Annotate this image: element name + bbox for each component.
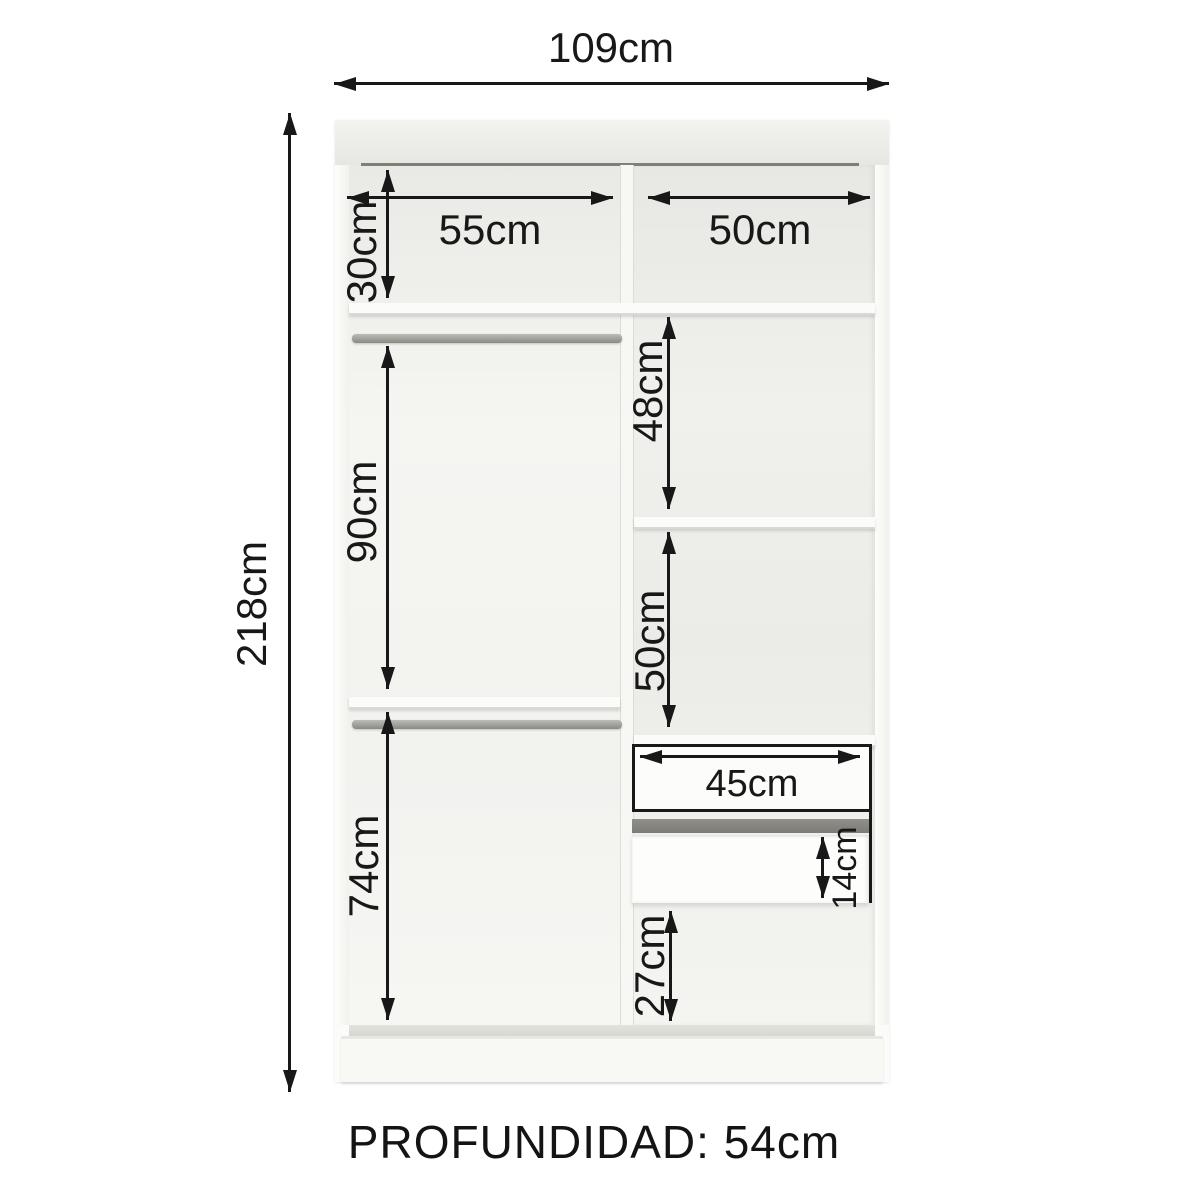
dim-label-shelf-upper-height: 48cm [627, 340, 669, 443]
dim-label-bottom-section-height: 27cm [629, 915, 671, 1018]
dim-label-drawer-width: 45cm [706, 765, 799, 803]
cabinet-top-panel [335, 120, 889, 165]
right-side-wall [875, 165, 889, 1025]
depth-label: PROFUNDIDAD: 54cm [348, 1115, 840, 1169]
cabinet-floor-strip [349, 1025, 875, 1036]
dim-arrow-top-section-height [386, 170, 389, 298]
dim-arrow-drawer-width [640, 755, 860, 758]
drawer-dimension-extension-line [869, 810, 872, 903]
right-column-upper-shelf [634, 517, 875, 529]
dim-label-total-width: 109cm [548, 27, 674, 69]
dim-label-top-right-width: 50cm [709, 209, 812, 251]
dim-arrow-upper-hanging-height [386, 346, 389, 689]
wardrobe-cabinet [335, 120, 889, 1082]
dim-arrow-drawer-height [821, 837, 824, 898]
left-column-lower-shelf [349, 697, 620, 709]
hanging-rod-upper [352, 334, 622, 343]
dim-arrow-total-width [334, 82, 889, 85]
top-panel-edge-line [361, 163, 859, 166]
full-width-shelf [349, 303, 875, 315]
dim-label-shelf-lower-height: 50cm [629, 590, 671, 693]
dim-label-upper-hanging-height: 90cm [341, 461, 383, 564]
dim-label-top-section-height: 30cm [341, 201, 383, 304]
dim-label-top-left-width: 55cm [439, 209, 542, 251]
dim-label-lower-hanging-height: 74cm [343, 815, 385, 918]
dim-label-total-height: 218cm [231, 541, 273, 667]
cabinet-plinth [341, 1036, 883, 1082]
dim-label-drawer-height: 14cm [828, 826, 862, 909]
wardrobe-dimensions-diagram: 109cm 218cm 55cm 50cm 30cm 90cm 74cm 48c… [0, 0, 1200, 1200]
dim-arrow-top-right-width [648, 196, 870, 199]
dim-arrow-total-height [288, 113, 291, 1092]
